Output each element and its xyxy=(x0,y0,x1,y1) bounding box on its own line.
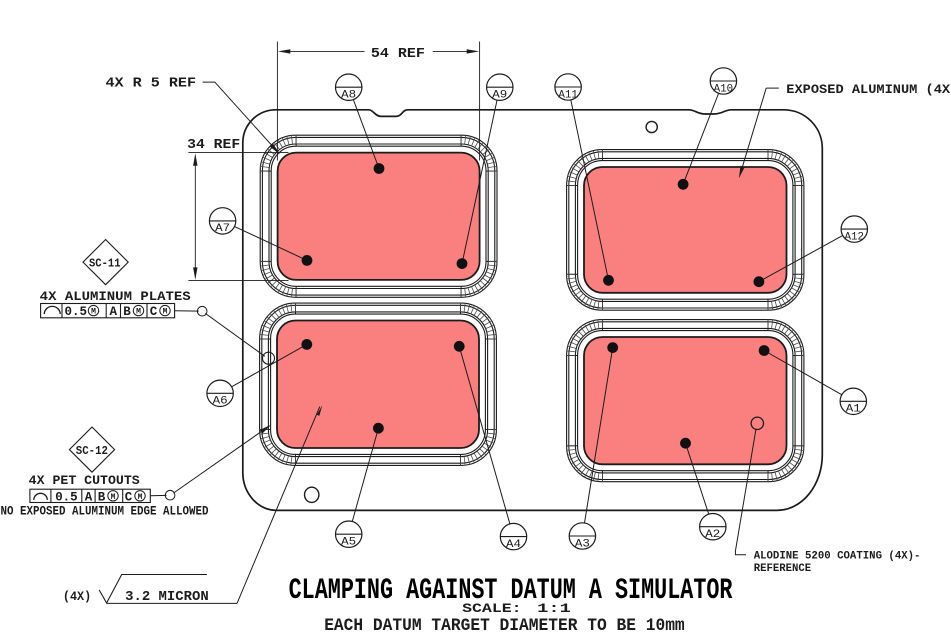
svg-text:M: M xyxy=(91,308,96,317)
svg-text:B: B xyxy=(98,491,106,505)
svg-text:A11: A11 xyxy=(558,89,578,101)
svg-text:54 REF: 54 REF xyxy=(371,46,425,62)
svg-text:M: M xyxy=(136,308,141,317)
svg-text:M: M xyxy=(163,308,168,317)
svg-text:A4: A4 xyxy=(506,539,521,551)
svg-text:4X R 5 REF: 4X R 5 REF xyxy=(106,76,197,92)
svg-text:0.5: 0.5 xyxy=(65,305,88,319)
svg-text:B: B xyxy=(123,305,131,319)
svg-text:A7: A7 xyxy=(215,223,230,235)
svg-text:A5: A5 xyxy=(341,537,356,549)
svg-text:4X ALUMINUM PLATES: 4X ALUMINUM PLATES xyxy=(40,289,191,304)
svg-text:EACH DATUM TARGET DIAMETER TO: EACH DATUM TARGET DIAMETER TO BE 10mm xyxy=(324,616,685,635)
svg-text:SC-11: SC-11 xyxy=(89,257,121,270)
svg-text:C: C xyxy=(125,491,133,505)
svg-text:A2: A2 xyxy=(705,529,720,541)
svg-text:A1: A1 xyxy=(846,404,861,416)
svg-text:0.5: 0.5 xyxy=(55,491,77,505)
svg-text:34 REF: 34 REF xyxy=(187,137,240,153)
svg-text:A: A xyxy=(85,491,93,505)
svg-text:1:1: 1:1 xyxy=(537,601,571,616)
svg-text:SCALE:: SCALE: xyxy=(462,601,521,616)
svg-text:3.2 MICRON: 3.2 MICRON xyxy=(125,589,209,605)
svg-text:REFERENCE: REFERENCE xyxy=(754,563,812,575)
svg-text:A12: A12 xyxy=(845,231,865,243)
svg-text:4X PET CUTOUTS: 4X PET CUTOUTS xyxy=(29,473,140,488)
svg-text:A6: A6 xyxy=(213,396,228,408)
svg-text:M: M xyxy=(111,493,116,502)
svg-text:A: A xyxy=(110,305,118,319)
svg-text:EXPOSED ALUMINUM (4X): EXPOSED ALUMINUM (4X) xyxy=(786,82,951,97)
svg-text:SC-12: SC-12 xyxy=(76,445,108,458)
svg-text:M: M xyxy=(138,493,143,502)
svg-text:NO EXPOSED ALUMINUM EDGE ALLOW: NO EXPOSED ALUMINUM EDGE ALLOWED xyxy=(1,504,209,518)
svg-text:A9: A9 xyxy=(492,90,507,102)
svg-text:A8: A8 xyxy=(341,90,356,102)
svg-text:A10: A10 xyxy=(714,83,734,95)
svg-text:(4X): (4X) xyxy=(63,589,91,604)
svg-text:ALODINE 5200 COATING (4X)-: ALODINE 5200 COATING (4X)- xyxy=(754,550,921,562)
svg-text:C: C xyxy=(150,305,158,319)
svg-text:A3: A3 xyxy=(575,538,590,550)
